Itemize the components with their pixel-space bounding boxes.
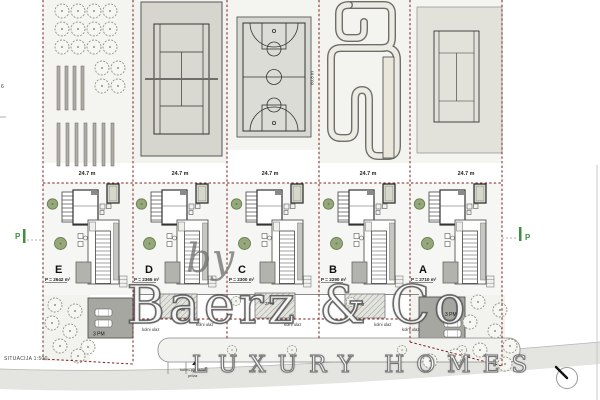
entrance-label-d: kolni ulaz bbox=[196, 322, 213, 327]
plot-letter-a: A bbox=[419, 264, 427, 276]
parking-label: 2PM bbox=[355, 302, 364, 307]
plot-letter-d: D bbox=[145, 264, 153, 276]
access-label-2: prilaz bbox=[188, 373, 198, 378]
plot-area-d: P = 2365 m² bbox=[134, 277, 160, 282]
plot-area-c: P = 2300 m² bbox=[229, 277, 255, 282]
track-building bbox=[383, 57, 394, 158]
p-marker-label: P bbox=[15, 232, 21, 241]
garage-label: 3 PM bbox=[93, 332, 105, 338]
scale-label: SITUACIJA 1:500 bbox=[4, 356, 48, 362]
dim-label-d: 24.7 m bbox=[172, 171, 189, 177]
dim-label-b: 24.7 m bbox=[360, 171, 377, 177]
entrance-label-b: kolni ulaz bbox=[374, 322, 391, 327]
plot-area-e: P = 2642 m² bbox=[45, 277, 71, 282]
garage-3pm-e: 3 PM bbox=[88, 298, 133, 338]
court-length-dimension: 60.8 m bbox=[310, 71, 315, 85]
garage-label: 3 PM bbox=[445, 312, 457, 318]
entrance-label-a: kolni ulaz bbox=[402, 327, 419, 332]
plot-letter-b: B bbox=[329, 264, 337, 276]
site-plan-drawing: 60.8 m E P = 2642 m² D P = 2365 m² C P =… bbox=[0, 0, 600, 400]
tennis-court-2 bbox=[417, 7, 502, 153]
parking-pad-d: 2PM bbox=[160, 294, 197, 318]
dim-label-c: 24.7 m bbox=[262, 171, 279, 177]
parking-pad-c: 2PM bbox=[255, 293, 295, 318]
p-marker-label: P bbox=[525, 233, 531, 242]
dim-label-a: 24.7 m bbox=[458, 171, 475, 177]
north-compass-icon bbox=[556, 367, 578, 389]
access-label-1: kolno-pješački bbox=[180, 367, 205, 372]
plot-letter-c: C bbox=[238, 264, 246, 276]
plot-letter-e: E bbox=[55, 264, 62, 276]
parking-marker-left: P bbox=[15, 229, 43, 243]
dim-label-e: 24.7 m bbox=[79, 171, 96, 177]
basketball-court bbox=[237, 17, 311, 137]
parking-marker-right: P bbox=[502, 227, 531, 242]
tennis-court bbox=[141, 2, 222, 156]
garage-3pm-a: 3 PM bbox=[419, 297, 465, 342]
site-plan-svg: 60.8 m E P = 2642 m² D P = 2365 m² C P =… bbox=[0, 0, 600, 400]
edge-label: 6 bbox=[1, 84, 4, 90]
parking-label: 2PM bbox=[265, 301, 274, 306]
entrance-label-c: kolni ulaz bbox=[284, 322, 301, 327]
entrance-label-e: kolni ulaz bbox=[142, 327, 159, 332]
plot-area-a: P = 2710 m² bbox=[411, 277, 437, 282]
parking-label: 2PM bbox=[176, 307, 185, 312]
plot-area-b: P = 2290 m² bbox=[321, 277, 347, 282]
